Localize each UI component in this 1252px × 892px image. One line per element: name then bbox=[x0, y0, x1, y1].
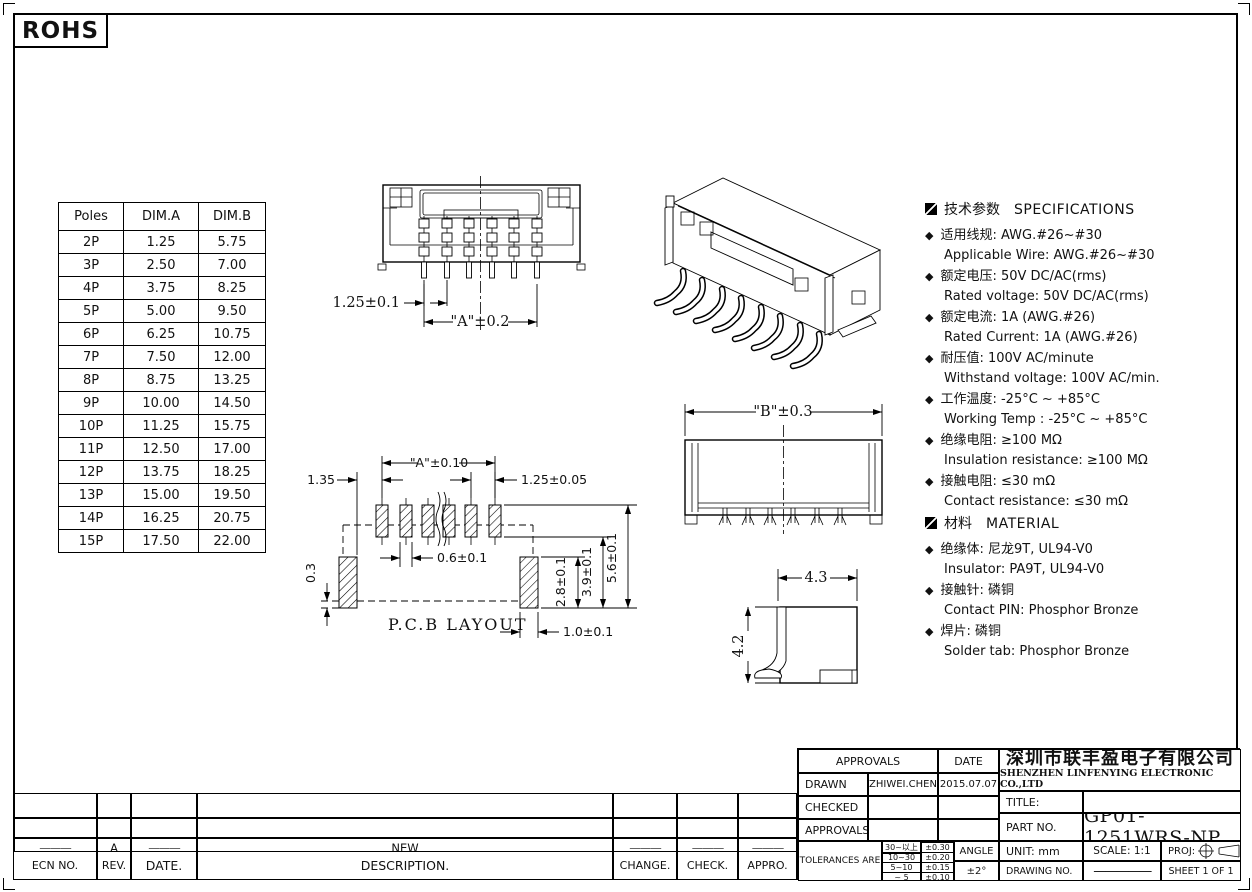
spec-line-zh: ◆适用线规: AWG.#26~#30 bbox=[925, 226, 1237, 246]
poles-table-row: 7P 7.50 12.00 bbox=[59, 346, 266, 369]
dima-cell: 12.50 bbox=[124, 438, 199, 461]
spec-item: ◆额定电压: 50V DC/AC(rms) Rated voltage: 50V… bbox=[925, 267, 1237, 307]
diamond-bullet-icon: ◆ bbox=[925, 543, 933, 556]
dima-cell: 10.00 bbox=[124, 392, 199, 415]
spec-line-en: Contact resistance: ≤30 mΩ bbox=[925, 492, 1237, 512]
dimb-cell: 8.25 bbox=[199, 277, 266, 300]
date-cell bbox=[131, 793, 197, 818]
part-no-label: PART NO. bbox=[999, 813, 1083, 841]
poles-table-row: 10P 11.25 15.75 bbox=[59, 415, 266, 438]
check-header: CHECK. bbox=[677, 851, 738, 880]
material-line-en: Solder tab: Phosphor Bronze bbox=[925, 642, 1237, 662]
poles-table-row: 3P 2.50 7.00 bbox=[59, 254, 266, 277]
profile-height-dim: 4.2 bbox=[731, 634, 747, 657]
dima-cell: 13.75 bbox=[124, 461, 199, 484]
poles-cell: 13P bbox=[59, 484, 124, 507]
profile-width-dim: 4.3 bbox=[804, 570, 827, 586]
projection-symbol-icon bbox=[1197, 842, 1241, 860]
poles-table-row: 5P 5.00 9.50 bbox=[59, 300, 266, 323]
drawing-no-value: ————— bbox=[1083, 861, 1161, 881]
dimb-cell: 17.00 bbox=[199, 438, 266, 461]
approved-label: APPROVALS bbox=[798, 819, 868, 841]
pcb-tab-offset-dim: 0.3 bbox=[303, 563, 318, 583]
poles-cell: 14P bbox=[59, 507, 124, 530]
corner-mark bbox=[1238, 3, 1250, 15]
poles-cell: 10P bbox=[59, 415, 124, 438]
dima-col-header: DIM.A bbox=[124, 203, 199, 231]
isometric-view-drawing bbox=[645, 160, 900, 375]
dimb-cell: 5.75 bbox=[199, 231, 266, 254]
poles-table-row: 8P 8.75 13.25 bbox=[59, 369, 266, 392]
pcb-tab-width-dim: 1.0±0.1 bbox=[563, 624, 613, 639]
approved-date bbox=[938, 819, 999, 841]
poles-col-header: Poles bbox=[59, 203, 124, 231]
ecn-cell bbox=[13, 793, 97, 818]
approved-value bbox=[868, 819, 938, 841]
dimb-cell: 12.00 bbox=[199, 346, 266, 369]
drawn-date: 2015.07.07 bbox=[938, 773, 999, 796]
dimb-cell: 14.50 bbox=[199, 392, 266, 415]
title-value bbox=[1083, 791, 1241, 813]
spec-item: ◆绝缘电阻: ≥100 MΩ Insulation resistance: ≥1… bbox=[925, 431, 1237, 471]
date-header: DATE. bbox=[131, 851, 197, 880]
section-square-icon bbox=[925, 517, 937, 529]
spec-item: ◆工作温度: -25°C ~ +85°C Working Temp : -25°… bbox=[925, 390, 1237, 430]
diamond-bullet-icon: ◆ bbox=[925, 584, 933, 597]
poles-cell: 15P bbox=[59, 530, 124, 553]
diamond-bullet-icon: ◆ bbox=[925, 311, 933, 324]
appro-header: APPRO. bbox=[738, 851, 797, 880]
spec-line-en: Insulation resistance: ≥100 MΩ bbox=[925, 451, 1237, 471]
material-line-en: Insulator: PA9T, UL94-V0 bbox=[925, 560, 1237, 580]
front-a-dim: "A"±0.2 bbox=[450, 314, 509, 330]
dimb-cell: 15.75 bbox=[199, 415, 266, 438]
poles-cell: 12P bbox=[59, 461, 124, 484]
drawing-sheet: ROHS Poles DIM.A DIM.B 2P 1.25 5.75 3P 2… bbox=[0, 0, 1252, 892]
diamond-bullet-icon: ◆ bbox=[925, 270, 933, 283]
spec-line-zh: ◆绝缘电阻: ≥100 MΩ bbox=[925, 431, 1237, 451]
ecn-cell bbox=[13, 818, 97, 838]
spec-item: ◆接触电阻: ≤30 mΩ Contact resistance: ≤30 mΩ bbox=[925, 472, 1237, 512]
date-header-cell: DATE bbox=[938, 749, 999, 773]
dima-cell: 15.00 bbox=[124, 484, 199, 507]
material-list: ◆绝缘体: 尼龙9T, UL94-V0 Insulator: PA9T, UL9… bbox=[925, 540, 1237, 662]
rev-cell bbox=[97, 793, 131, 818]
profile-view-drawing: 4.3 4.2 bbox=[722, 557, 900, 707]
sheet-label: SHEET 1 OF 1 bbox=[1161, 861, 1241, 881]
angle-value: ±2° bbox=[954, 861, 999, 881]
proj-label: PROJ: bbox=[1168, 846, 1195, 857]
spec-item: ◆适用线规: AWG.#26~#30 Applicable Wire: AWG.… bbox=[925, 226, 1237, 266]
material-line-zh: ◆接触针: 磷铜 bbox=[925, 581, 1237, 601]
dima-cell: 7.50 bbox=[124, 346, 199, 369]
dimb-col-header: DIM.B bbox=[199, 203, 266, 231]
poles-table-row: 9P 10.00 14.50 bbox=[59, 392, 266, 415]
poles-table-row: 4P 3.75 8.25 bbox=[59, 277, 266, 300]
spec-line-en: Rated Current: 1A (AWG.#26) bbox=[925, 328, 1237, 348]
company-name-en: SHENZHEN LINFENYING ELECTRONIC CO.,LTD bbox=[1000, 769, 1240, 791]
spec-list: ◆适用线规: AWG.#26~#30 Applicable Wire: AWG.… bbox=[925, 226, 1237, 512]
spec-item: ◆额定电流: 1A (AWG.#26) Rated Current: 1A (A… bbox=[925, 308, 1237, 348]
change-cell bbox=[613, 818, 677, 838]
pcb-layout-title: P.C.B LAYOUT bbox=[388, 615, 528, 634]
description-cell bbox=[197, 793, 613, 818]
change-cell bbox=[613, 793, 677, 818]
description-cell bbox=[197, 818, 613, 838]
poles-table-row: 14P 16.25 20.75 bbox=[59, 507, 266, 530]
material-item: ◆焊片: 磷铜 Solder tab: Phosphor Bronze bbox=[925, 622, 1237, 662]
material-line-zh: ◆焊片: 磷铜 bbox=[925, 622, 1237, 642]
poles-table-row: 15P 17.50 22.00 bbox=[59, 530, 266, 553]
title-block: APPROVALS DATE DRAWN ZHIWEI.CHEN 2015.07… bbox=[797, 748, 1240, 880]
spec-line-en: Applicable Wire: AWG.#26~#30 bbox=[925, 246, 1237, 266]
drawn-value: ZHIWEI.CHEN bbox=[868, 773, 938, 796]
dimb-cell: 18.25 bbox=[199, 461, 266, 484]
pcb-a-dim: "A"±0.10 bbox=[410, 455, 468, 470]
dima-cell: 1.25 bbox=[124, 231, 199, 254]
appro-cell bbox=[738, 793, 797, 818]
description-header: DESCRIPTION. bbox=[197, 851, 613, 880]
check-cell bbox=[677, 793, 738, 818]
diamond-bullet-icon: ◆ bbox=[925, 434, 933, 447]
pcb-left-offset-dim: 1.35 bbox=[307, 472, 335, 487]
section-square-icon bbox=[925, 203, 937, 215]
front-pitch-dim: 1.25±0.1 bbox=[333, 295, 401, 311]
dima-cell: 8.75 bbox=[124, 369, 199, 392]
material-title-en: MATERIAL bbox=[986, 516, 1059, 532]
appro-cell bbox=[738, 818, 797, 838]
company-name-zh: 深圳市联丰盈电子有限公司 bbox=[1006, 749, 1234, 769]
diamond-bullet-icon: ◆ bbox=[925, 352, 933, 365]
tolerances-label: TOLERANCES ARE bbox=[798, 841, 882, 881]
poles-cell: 6P bbox=[59, 323, 124, 346]
part-no-value: GP01-1251WRS-NP bbox=[1083, 813, 1241, 841]
pcb-total-span-dim: 5.6±0.1 bbox=[604, 533, 619, 583]
ecn-no-header: ECN NO. bbox=[13, 851, 97, 880]
dimb-cell: 13.25 bbox=[199, 369, 266, 392]
front-view-drawing: 1.25±0.1 "A"±0.2 bbox=[330, 172, 630, 337]
checked-label: CHECKED bbox=[798, 796, 868, 819]
poles-cell: 4P bbox=[59, 277, 124, 300]
side-view-drawing: "B"±0.3 bbox=[678, 392, 893, 542]
dimb-cell: 20.75 bbox=[199, 507, 266, 530]
spec-line-zh: ◆额定电流: 1A (AWG.#26) bbox=[925, 308, 1237, 328]
dima-cell: 6.25 bbox=[124, 323, 199, 346]
specifications-panel: 技术参数SPECIFICATIONS ◆适用线规: AWG.#26~#30 Ap… bbox=[925, 200, 1237, 663]
scale-label: SCALE: 1:1 bbox=[1083, 841, 1161, 861]
checked-value bbox=[868, 796, 938, 819]
spec-line-zh: ◆接触电阻: ≤30 mΩ bbox=[925, 472, 1237, 492]
pcb-layout-drawing: "A"±0.10 1.35 1.25±0.05 0.6±0.1 0.3 2.8±… bbox=[293, 442, 645, 650]
rev-cell bbox=[97, 818, 131, 838]
dimb-cell: 9.50 bbox=[199, 300, 266, 323]
dima-cell: 17.50 bbox=[124, 530, 199, 553]
poles-table-row: 12P 13.75 18.25 bbox=[59, 461, 266, 484]
specs-title-zh: 技术参数 bbox=[944, 202, 1000, 218]
diamond-bullet-icon: ◆ bbox=[925, 475, 933, 488]
change-header: CHANGE. bbox=[613, 851, 677, 880]
tolerance-table: 30~以上 ±0.30 10~30 ±0.20 5~10 ±0.15 ~ 5 ±… bbox=[882, 841, 954, 881]
drawn-label: DRAWN bbox=[798, 773, 868, 796]
pcb-row-span-dim: 3.9±0.1 bbox=[579, 547, 594, 597]
angle-label: ANGLE bbox=[954, 841, 999, 861]
rohs-badge: ROHS bbox=[13, 13, 108, 48]
dima-cell: 3.75 bbox=[124, 277, 199, 300]
poles-cell: 7P bbox=[59, 346, 124, 369]
projection-cell: PROJ: bbox=[1161, 841, 1241, 861]
dima-cell: 11.25 bbox=[124, 415, 199, 438]
spec-line-en: Working Temp : -25°C ~ +85°C bbox=[925, 410, 1237, 430]
spec-line-zh: ◆额定电压: 50V DC/AC(rms) bbox=[925, 267, 1237, 287]
dimb-cell: 19.50 bbox=[199, 484, 266, 507]
poles-table-row: 6P 6.25 10.75 bbox=[59, 323, 266, 346]
tolerance-value: ±0.10 bbox=[921, 872, 954, 882]
unit-label: UNIT: mm bbox=[999, 841, 1083, 861]
material-item: ◆绝缘体: 尼龙9T, UL94-V0 Insulator: PA9T, UL9… bbox=[925, 540, 1237, 580]
dimb-cell: 10.75 bbox=[199, 323, 266, 346]
poles-cell: 8P bbox=[59, 369, 124, 392]
poles-cell: 3P bbox=[59, 254, 124, 277]
spec-line-en: Withstand voltage: 100V AC/min. bbox=[925, 369, 1237, 389]
diamond-bullet-icon: ◆ bbox=[925, 393, 933, 406]
rev-header: REV. bbox=[97, 851, 131, 880]
poles-cell: 9P bbox=[59, 392, 124, 415]
spec-line-zh: ◆耐压值: 100V AC/minute bbox=[925, 349, 1237, 369]
spec-item: ◆耐压值: 100V AC/minute Withstand voltage: … bbox=[925, 349, 1237, 389]
checked-date bbox=[938, 796, 999, 819]
diamond-bullet-icon: ◆ bbox=[925, 625, 933, 638]
material-line-en: Contact PIN: Phosphor Bronze bbox=[925, 601, 1237, 621]
tolerance-range: ~ 5 bbox=[882, 872, 921, 882]
poles-cell: 11P bbox=[59, 438, 124, 461]
title-label: TITLE: bbox=[999, 791, 1083, 813]
dima-cell: 2.50 bbox=[124, 254, 199, 277]
spec-line-en: Rated voltage: 50V DC/AC(rms) bbox=[925, 287, 1237, 307]
poles-table: Poles DIM.A DIM.B 2P 1.25 5.75 3P 2.50 7… bbox=[58, 202, 266, 553]
material-line-zh: ◆绝缘体: 尼龙9T, UL94-V0 bbox=[925, 540, 1237, 560]
side-b-dim: "B"±0.3 bbox=[753, 404, 812, 420]
material-header: 材料MATERIAL bbox=[925, 514, 1237, 534]
material-item: ◆接触针: 磷铜 Contact PIN: Phosphor Bronze bbox=[925, 581, 1237, 621]
pcb-tab-height-dim: 2.8±0.1 bbox=[553, 557, 568, 607]
approvals-header: APPROVALS bbox=[798, 749, 938, 773]
specs-title-en: SPECIFICATIONS bbox=[1014, 202, 1135, 218]
dima-cell: 5.00 bbox=[124, 300, 199, 323]
dima-cell: 16.25 bbox=[124, 507, 199, 530]
specifications-header: 技术参数SPECIFICATIONS bbox=[925, 200, 1237, 220]
rohs-label: ROHS bbox=[22, 18, 99, 44]
pcb-pitch-dim: 1.25±0.05 bbox=[521, 472, 587, 487]
dimb-cell: 7.00 bbox=[199, 254, 266, 277]
poles-cell: 2P bbox=[59, 231, 124, 254]
poles-table-body: Poles DIM.A DIM.B 2P 1.25 5.75 3P 2.50 7… bbox=[59, 203, 266, 553]
spec-line-zh: ◆工作温度: -25°C ~ +85°C bbox=[925, 390, 1237, 410]
dimb-cell: 22.00 bbox=[199, 530, 266, 553]
poles-cell: 5P bbox=[59, 300, 124, 323]
company-block: 深圳市联丰盈电子有限公司 SHENZHEN LINFENYING ELECTRO… bbox=[999, 749, 1241, 791]
poles-table-row: 11P 12.50 17.00 bbox=[59, 438, 266, 461]
poles-table-row: 13P 15.00 19.50 bbox=[59, 484, 266, 507]
material-title-zh: 材料 bbox=[944, 516, 972, 532]
date-cell bbox=[131, 818, 197, 838]
drawing-no-label: DRAWING NO. bbox=[999, 861, 1083, 881]
revision-table-headers: ECN NO. REV. DATE. DESCRIPTION. CHANGE. … bbox=[13, 851, 797, 880]
poles-table-row: 2P 1.25 5.75 bbox=[59, 231, 266, 254]
diamond-bullet-icon: ◆ bbox=[925, 229, 933, 242]
pcb-pad-width-dim: 0.6±0.1 bbox=[437, 550, 487, 565]
check-cell bbox=[677, 818, 738, 838]
